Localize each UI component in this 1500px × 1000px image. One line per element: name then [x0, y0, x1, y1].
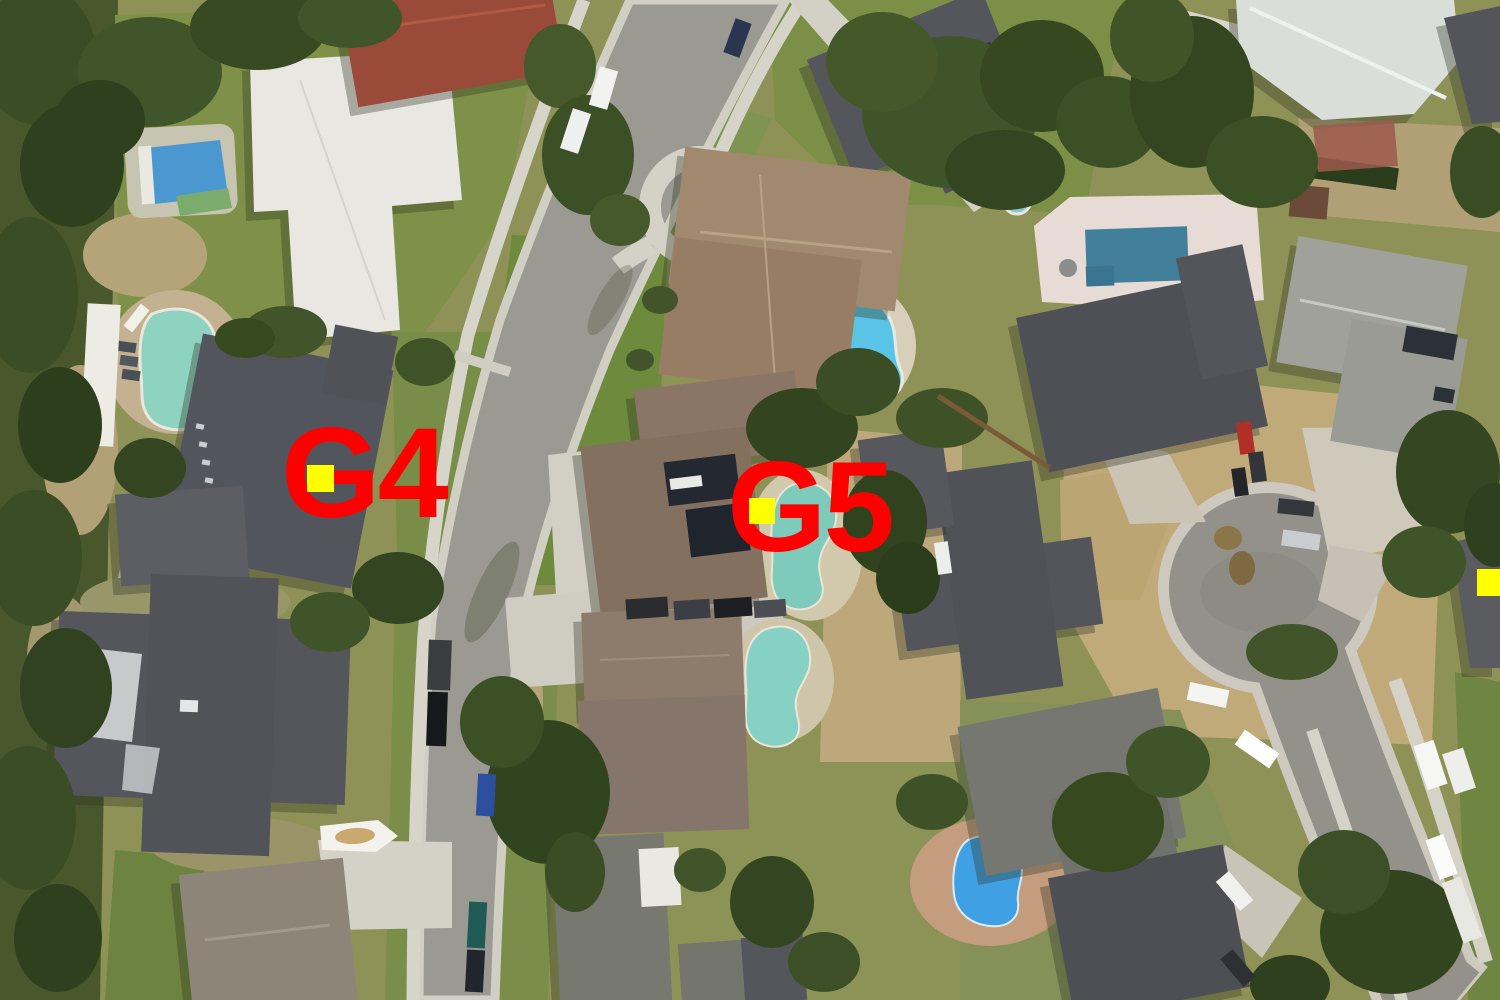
- marker-label-G4[interactable]: G4: [281, 402, 449, 545]
- marker-square-edge-partial[interactable]: [1477, 569, 1500, 596]
- marker-square-G4[interactable]: [307, 465, 334, 492]
- aerial-scene-svg: G4G5: [0, 0, 1500, 1000]
- marker-square-G5[interactable]: [749, 498, 775, 524]
- aerial-map-view: G4G5: [0, 0, 1500, 1000]
